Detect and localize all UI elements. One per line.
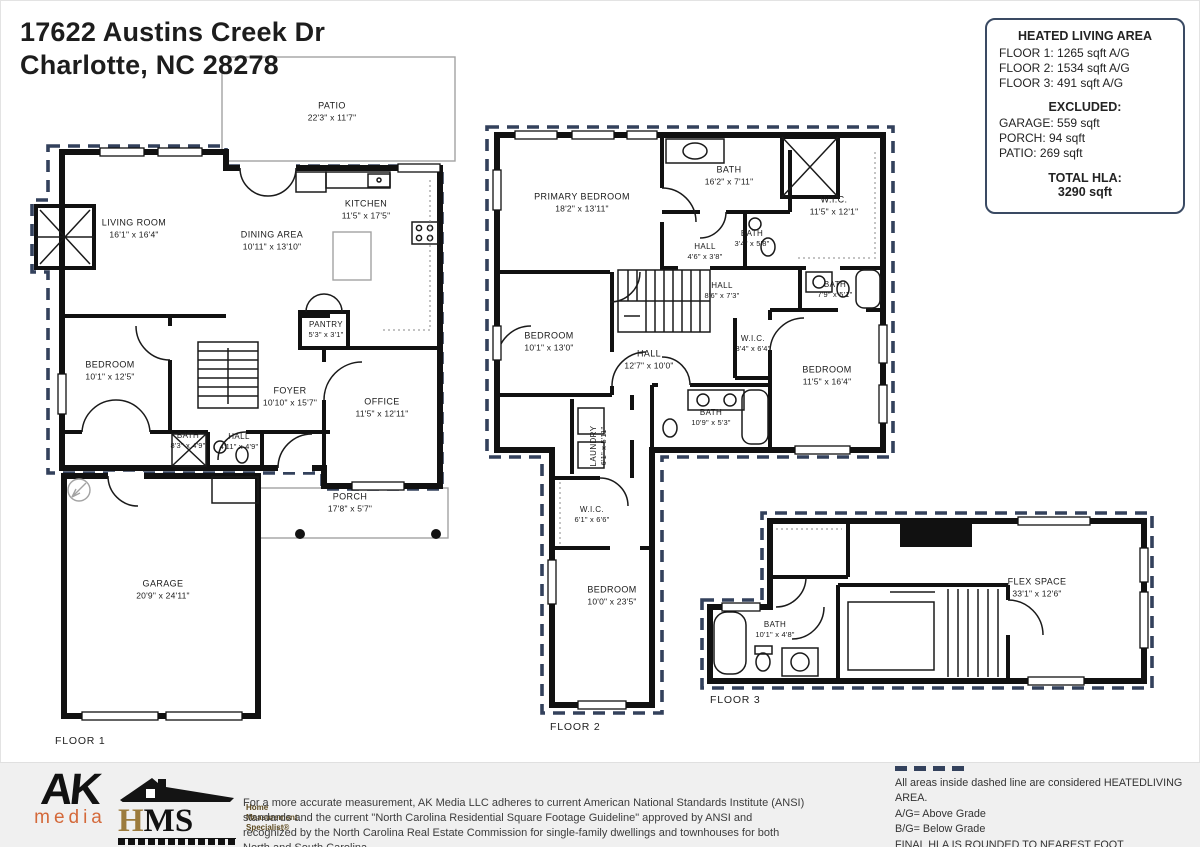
ak-logo-text: AK <box>28 768 113 812</box>
hla-excluded-porch: PORCH: 94 sqft <box>999 131 1173 145</box>
room-label-porch: PORCH 17'8" x 5'7" <box>328 492 372 515</box>
hms-roof-icon <box>118 776 236 802</box>
ansi-disclaimer: For a more accurate measurement, AK Medi… <box>243 796 809 847</box>
room-label-patio: PATIO 22'3" x 11'7" <box>308 101 357 124</box>
hla-excluded-patio: PATIO: 269 sqft <box>999 146 1173 160</box>
hla-floor2: FLOOR 2: 1534 sqft A/G <box>999 61 1173 75</box>
hms-wordmark: HMS <box>118 807 243 837</box>
room-label-bedroom4: BEDROOM 10'0" x 23'5" <box>587 585 636 608</box>
room-label-foyer: FOYER 10'10" x 15'7" <box>263 386 317 409</box>
room-label-hall-small: HALL 4'6" x 3'8" <box>688 242 723 262</box>
room-label-pantry: PANTRY 5'3" x 3'1" <box>309 320 344 340</box>
address-line1: 17622 Austins Creek Dr <box>20 16 325 49</box>
floor1-plan <box>32 57 455 720</box>
room-label-flex-space: FLEX SPACE 33'1" x 12'6" <box>1008 577 1067 600</box>
legend-block: All areas inside dashed line are conside… <box>895 766 1190 847</box>
hms-logo: HMS Home Measurement Specialist® <box>118 776 243 845</box>
room-label-bath-small: BATH 3'4" x 5'8" <box>735 229 770 249</box>
floor1-tag: FLOOR 1 <box>55 735 106 747</box>
room-label-hall-mid: HALL 8'6" x 7'3" <box>705 281 740 301</box>
room-label-office: OFFICE 11'5" x 12'11" <box>356 397 409 420</box>
hla-excluded-garage: GARAGE: 559 sqft <box>999 116 1173 130</box>
stairs-icon <box>198 342 258 408</box>
room-label-bath-f1: BATH 8'3" x 4'9" <box>171 431 206 451</box>
legend-below-grade: B/G= Below Grade <box>895 822 1190 838</box>
room-label-shared-bath: BATH 10'9" x 5'3" <box>691 408 730 428</box>
legend-heated: All areas inside dashed line are conside… <box>895 776 1190 807</box>
porch-post <box>431 529 441 539</box>
room-label-wic-primary: W.I.C. 11'5" x 12'1" <box>810 195 859 218</box>
dashed-line-sample <box>895 766 967 771</box>
room-label-laundry: LAUNDRY 6'1" x 5'11" <box>589 426 609 467</box>
legend-above-grade: A/G= Above Grade <box>895 807 1190 823</box>
address-line2: Charlotte, NC 28278 <box>20 49 325 82</box>
room-label-bedroom-f1: BEDROOM 10'1" x 12'5" <box>85 360 134 383</box>
stairs-icon <box>618 270 710 332</box>
hla-total-value: 3290 sqft <box>997 185 1173 199</box>
room-label-wic-bedroom: W.I.C. 6'1" x 6'6" <box>575 505 610 525</box>
room-label-garage: GARAGE 20'9" x 24'11" <box>136 579 190 602</box>
floor3-plan <box>702 513 1152 688</box>
heated-living-area-box: HEATED LIVING AREA FLOOR 1: 1265 sqft A/… <box>985 18 1185 214</box>
room-label-hall-f1: HALL 4'11" x 4'9" <box>220 432 259 452</box>
room-label-dining-area: DINING AREA 10'11" x 13'10" <box>241 230 303 253</box>
chase-block <box>900 521 972 547</box>
legend-rounding: FINAL HLA IS ROUNDED TO NEAREST FOOT <box>895 838 1190 847</box>
floor3-tag: FLOOR 3 <box>710 694 761 706</box>
floor-plan-page: 17622 Austins Creek Dr Charlotte, NC 282… <box>0 0 1200 847</box>
room-label-bedroom2: BEDROOM 10'1" x 13'0" <box>524 331 573 354</box>
porch-post <box>295 529 305 539</box>
room-label-primary-bedroom: PRIMARY BEDROOM 18'2" x 13'11" <box>534 192 630 215</box>
hla-excluded-title: EXCLUDED: <box>997 100 1173 114</box>
hla-title: HEATED LIVING AREA <box>997 29 1173 43</box>
property-address: 17622 Austins Creek Dr Charlotte, NC 282… <box>20 16 325 83</box>
room-label-wic-small: W.I.C. 3'4" x 6'4" <box>736 334 771 354</box>
hla-floor3: FLOOR 3: 491 sqft A/G <box>999 76 1173 90</box>
room-label-hall-main: HALL 12'7" x 10'0" <box>624 349 673 372</box>
room-label-primary-bath: BATH 16'2" x 7'11" <box>705 165 754 188</box>
room-label-bath-f3: BATH 10'1" x 4'8" <box>755 620 794 640</box>
floor2-tag: FLOOR 2 <box>550 721 601 733</box>
room-label-hall-bath: BATH 7'9" x 5'1" <box>818 280 853 300</box>
hla-total-title: TOTAL HLA: <box>997 171 1173 185</box>
room-label-living-room: LIVING ROOM 16'1" x 16'4" <box>102 218 166 241</box>
hla-floor1: FLOOR 1: 1265 sqft A/G <box>999 46 1173 60</box>
room-label-bedroom3: BEDROOM 11'5" x 16'4" <box>802 365 851 388</box>
room-label-kitchen: KITCHEN 11'5" x 17'5" <box>342 199 391 222</box>
ak-media-logo: AK media <box>30 768 110 827</box>
